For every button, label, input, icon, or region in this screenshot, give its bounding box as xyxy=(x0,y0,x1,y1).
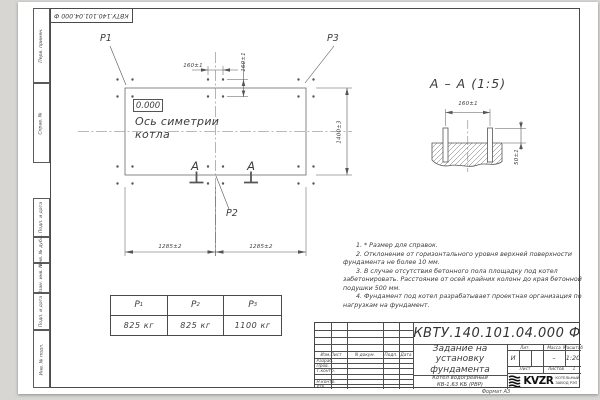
format-note: Формат А3 xyxy=(465,389,527,395)
drawing-page: КВТУ.140.101.04.000 Ф Перв. примен. Спра… xyxy=(0,0,600,400)
anchor-bolt-right xyxy=(488,128,493,162)
loads-table-header-p2: Р2 xyxy=(168,296,225,316)
product-line-2: КВ-1,63 КБ (РВР) xyxy=(437,382,483,389)
sig-row-tkontr: Т.контр. xyxy=(317,369,336,374)
value-lit: И xyxy=(507,350,519,366)
loads-table-value-p3: 1100 кг xyxy=(224,316,281,336)
title-block-document-title: Задание на установку фундамента xyxy=(413,344,507,375)
loads-table-header-p3: Р3 xyxy=(224,296,281,316)
sheet-label: Лист xyxy=(507,366,543,373)
symmetry-axis-label: Ось симетрии котла xyxy=(135,115,255,141)
kvzr-logo-text: KVZR xyxy=(523,375,553,387)
product-line-1: Котел водогрейный xyxy=(432,375,488,382)
rev-header-izm-list: Изм.Лист xyxy=(316,353,346,358)
note-1: 1. * Размер для справок. xyxy=(343,242,595,251)
dim-width-right-1285: 1285±2 xyxy=(241,243,281,251)
loads-table-value-p1: 825 кг xyxy=(111,316,168,336)
title-block-doc-number: КВТУ.140.101.04.000 Ф xyxy=(413,323,581,344)
rev-header-doc: N докум. xyxy=(349,353,381,358)
kvzr-logo-icon xyxy=(508,375,521,387)
loads-table-value-p2: 825 кг xyxy=(168,316,225,336)
p3-leader-line xyxy=(305,46,334,83)
note-3: 3. В случае отсутствия бетонного пола пл… xyxy=(343,268,595,294)
value-scale: 1:20 xyxy=(565,350,581,366)
plan-view-group xyxy=(78,46,352,256)
sheets-value: 1 xyxy=(569,366,579,373)
section-cut-mark-right xyxy=(244,172,258,183)
anchor-bolt-left xyxy=(443,128,448,162)
section-view-title: А – А (1:5) xyxy=(408,76,528,90)
load-point-label-p3: P3 xyxy=(327,33,349,44)
dim-width-left-1285: 1285±2 xyxy=(150,243,190,251)
dim-bolt-spacing-v: 160±1 xyxy=(237,50,250,74)
loads-table-header-p1: Р1 xyxy=(111,296,168,316)
note-4: 4. Фундамент под котел разрабатывает про… xyxy=(343,293,595,310)
rev-header-sign: Подп. xyxy=(383,353,399,358)
sheets-label: Листов xyxy=(543,366,569,373)
logo-row: KVZR КОТЕЛЬНЫЙ ЗАВОД РЭП xyxy=(507,373,581,389)
elevation-mark: 0.000 xyxy=(133,99,163,112)
dim-section-bolt-spacing: 160±1 xyxy=(448,100,488,108)
note-2: 2. Отклонение от горизонтального уровня … xyxy=(343,251,595,268)
load-point-label-p2: P2 xyxy=(226,208,248,219)
notes-block: 1. * Размер для справок. 2. Отклонение о… xyxy=(343,242,595,311)
section-letter-left: А xyxy=(188,159,202,172)
value-mass: – xyxy=(543,350,565,366)
dim-section-protrusion: 50±1 xyxy=(510,146,523,168)
rev-header-date: Дата xyxy=(399,353,413,358)
title-block-product: Котел водогрейный КВ-1,63 КБ (РВР) xyxy=(413,375,507,389)
dim-bolt-spacing-h: 160±1 xyxy=(181,62,205,70)
loads-table: Р1 Р2 Р3 825 кг 825 кг 1100 кг xyxy=(110,295,282,336)
section-cut-mark-left xyxy=(190,172,204,183)
dim-depth-1400: 1400±3 xyxy=(333,109,346,154)
sig-row-utv: Утв. xyxy=(317,385,326,390)
p2-leader-line xyxy=(216,176,229,209)
title-block: КВТУ.140.101.04.000 Ф Изм.Лист N докум. … xyxy=(314,322,580,388)
kvzr-company-name: КОТЕЛЬНЫЙ ЗАВОД РЭП xyxy=(555,376,579,385)
load-point-label-p1: P1 xyxy=(100,33,122,44)
section-letter-right: А xyxy=(244,159,258,172)
